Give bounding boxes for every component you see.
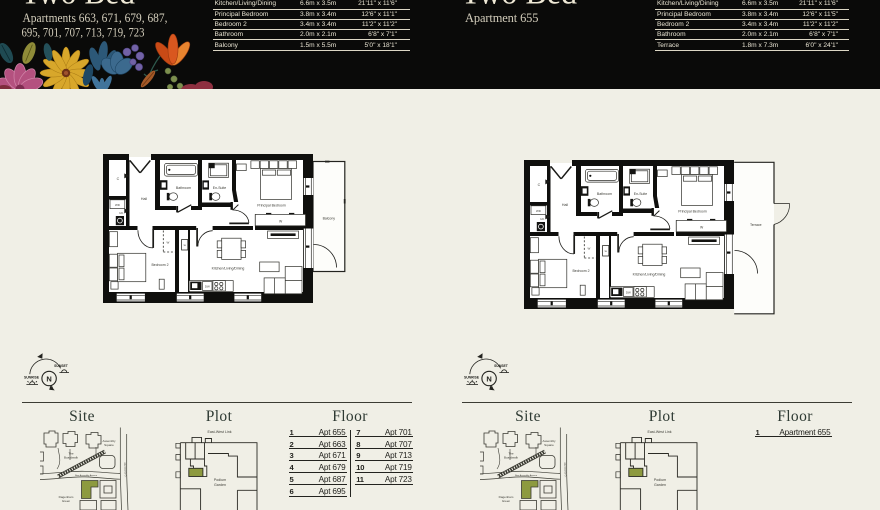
svg-text:Terrace: Terrace [750, 223, 762, 227]
svg-text:Balcony: Balcony [323, 217, 336, 221]
